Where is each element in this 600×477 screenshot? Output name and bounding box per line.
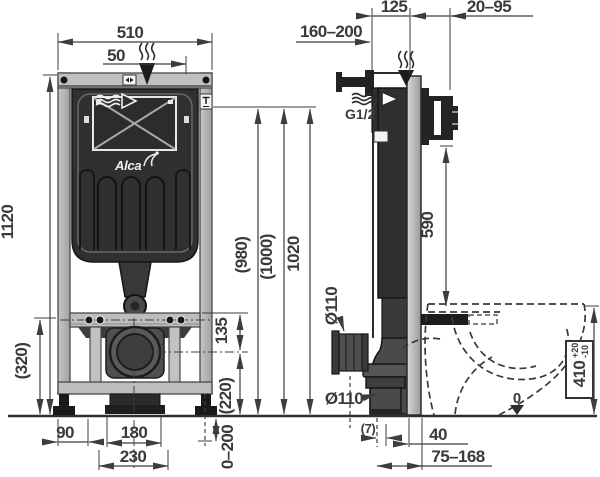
right-post	[169, 327, 180, 383]
dim-wall-distance: 20–95	[467, 0, 511, 16]
label-water-inlet: G1/2	[345, 106, 376, 122]
technical-drawing-canvas: Alca	[0, 0, 600, 477]
pipe-coupling	[332, 331, 368, 374]
wc-studs-hidden	[469, 315, 497, 324]
tank-clip-right	[184, 116, 189, 123]
dim-frame-depth: 125	[381, 0, 408, 16]
dim-gap-small: (7)	[361, 421, 376, 436]
dim-pipe-dia-upper: Ø110	[322, 287, 341, 325]
dim-flush-height-a: (980)	[232, 237, 251, 274]
dim-width-total: 510	[117, 23, 144, 42]
label-floor-zero: 0	[513, 390, 521, 407]
dim-cutout-width: 230	[120, 447, 147, 466]
left-rail	[58, 73, 70, 394]
dim-flush-height-c: 1020	[284, 236, 303, 272]
lower-bar	[58, 382, 212, 394]
dim-frame-height: 1120	[0, 205, 17, 240]
right-rail	[200, 73, 212, 394]
outlet-pipe-end	[370, 409, 401, 414]
dim-bracket-to-drain: 135	[212, 318, 231, 345]
elbow-hub	[363, 364, 408, 377]
dim-side-clear: 90	[56, 423, 74, 442]
flush-plate-icon	[123, 75, 136, 85]
tank-side	[378, 88, 407, 298]
top-bolt-right	[203, 77, 210, 84]
dim-drain-offset-range: 75–168	[431, 447, 484, 466]
elbow-collar	[366, 377, 405, 388]
wc-frame-drawing: Alca	[0, 0, 600, 477]
brand-logo-text: Alca	[114, 158, 141, 173]
dim-bracket-to-studs: 590	[418, 212, 437, 239]
zero-level-icon	[510, 405, 524, 415]
tank-side-label	[374, 131, 388, 142]
dim-outlet-width: 180	[121, 423, 148, 442]
wc-studs	[421, 314, 468, 325]
front-view-frame: Alca	[53, 43, 217, 415]
tank-clip-left	[84, 116, 89, 123]
inspection-window-icon	[93, 97, 176, 150]
down-pipe	[382, 298, 407, 340]
flush-pipe	[119, 262, 151, 297]
side-view-dimensions: 125 20–95 160–200 G1/2 590 Ø110 Ø110 410…	[296, 0, 599, 470]
dim-flush-height-b: (1000)	[257, 234, 276, 280]
dim-rail-depth: 40	[429, 425, 447, 444]
flush-elbow-center	[131, 302, 140, 311]
drain-socket-flange	[105, 405, 165, 414]
wall-bracket	[421, 88, 458, 145]
left-post	[90, 327, 101, 383]
dim-leg-adjust: 0–200	[218, 425, 237, 469]
dim-bowl-height: 410	[570, 361, 589, 388]
water-inlet	[336, 70, 374, 96]
dim-flush-pipe-range: 160–200	[300, 22, 362, 41]
dim-bowl-tol-plus: +20	[570, 343, 580, 358]
dim-drain-height: (220)	[216, 378, 235, 415]
wall-rail	[407, 76, 421, 415]
dim-pipe-dia-lower: Ø110	[325, 389, 363, 408]
dim-bowl-tol-minus: -10	[580, 345, 590, 358]
dim-top-offset: 50	[107, 46, 125, 65]
dim-bracket-height: (320)	[12, 343, 31, 380]
top-bolt-left	[61, 77, 68, 84]
tee-label-icon	[200, 94, 212, 109]
